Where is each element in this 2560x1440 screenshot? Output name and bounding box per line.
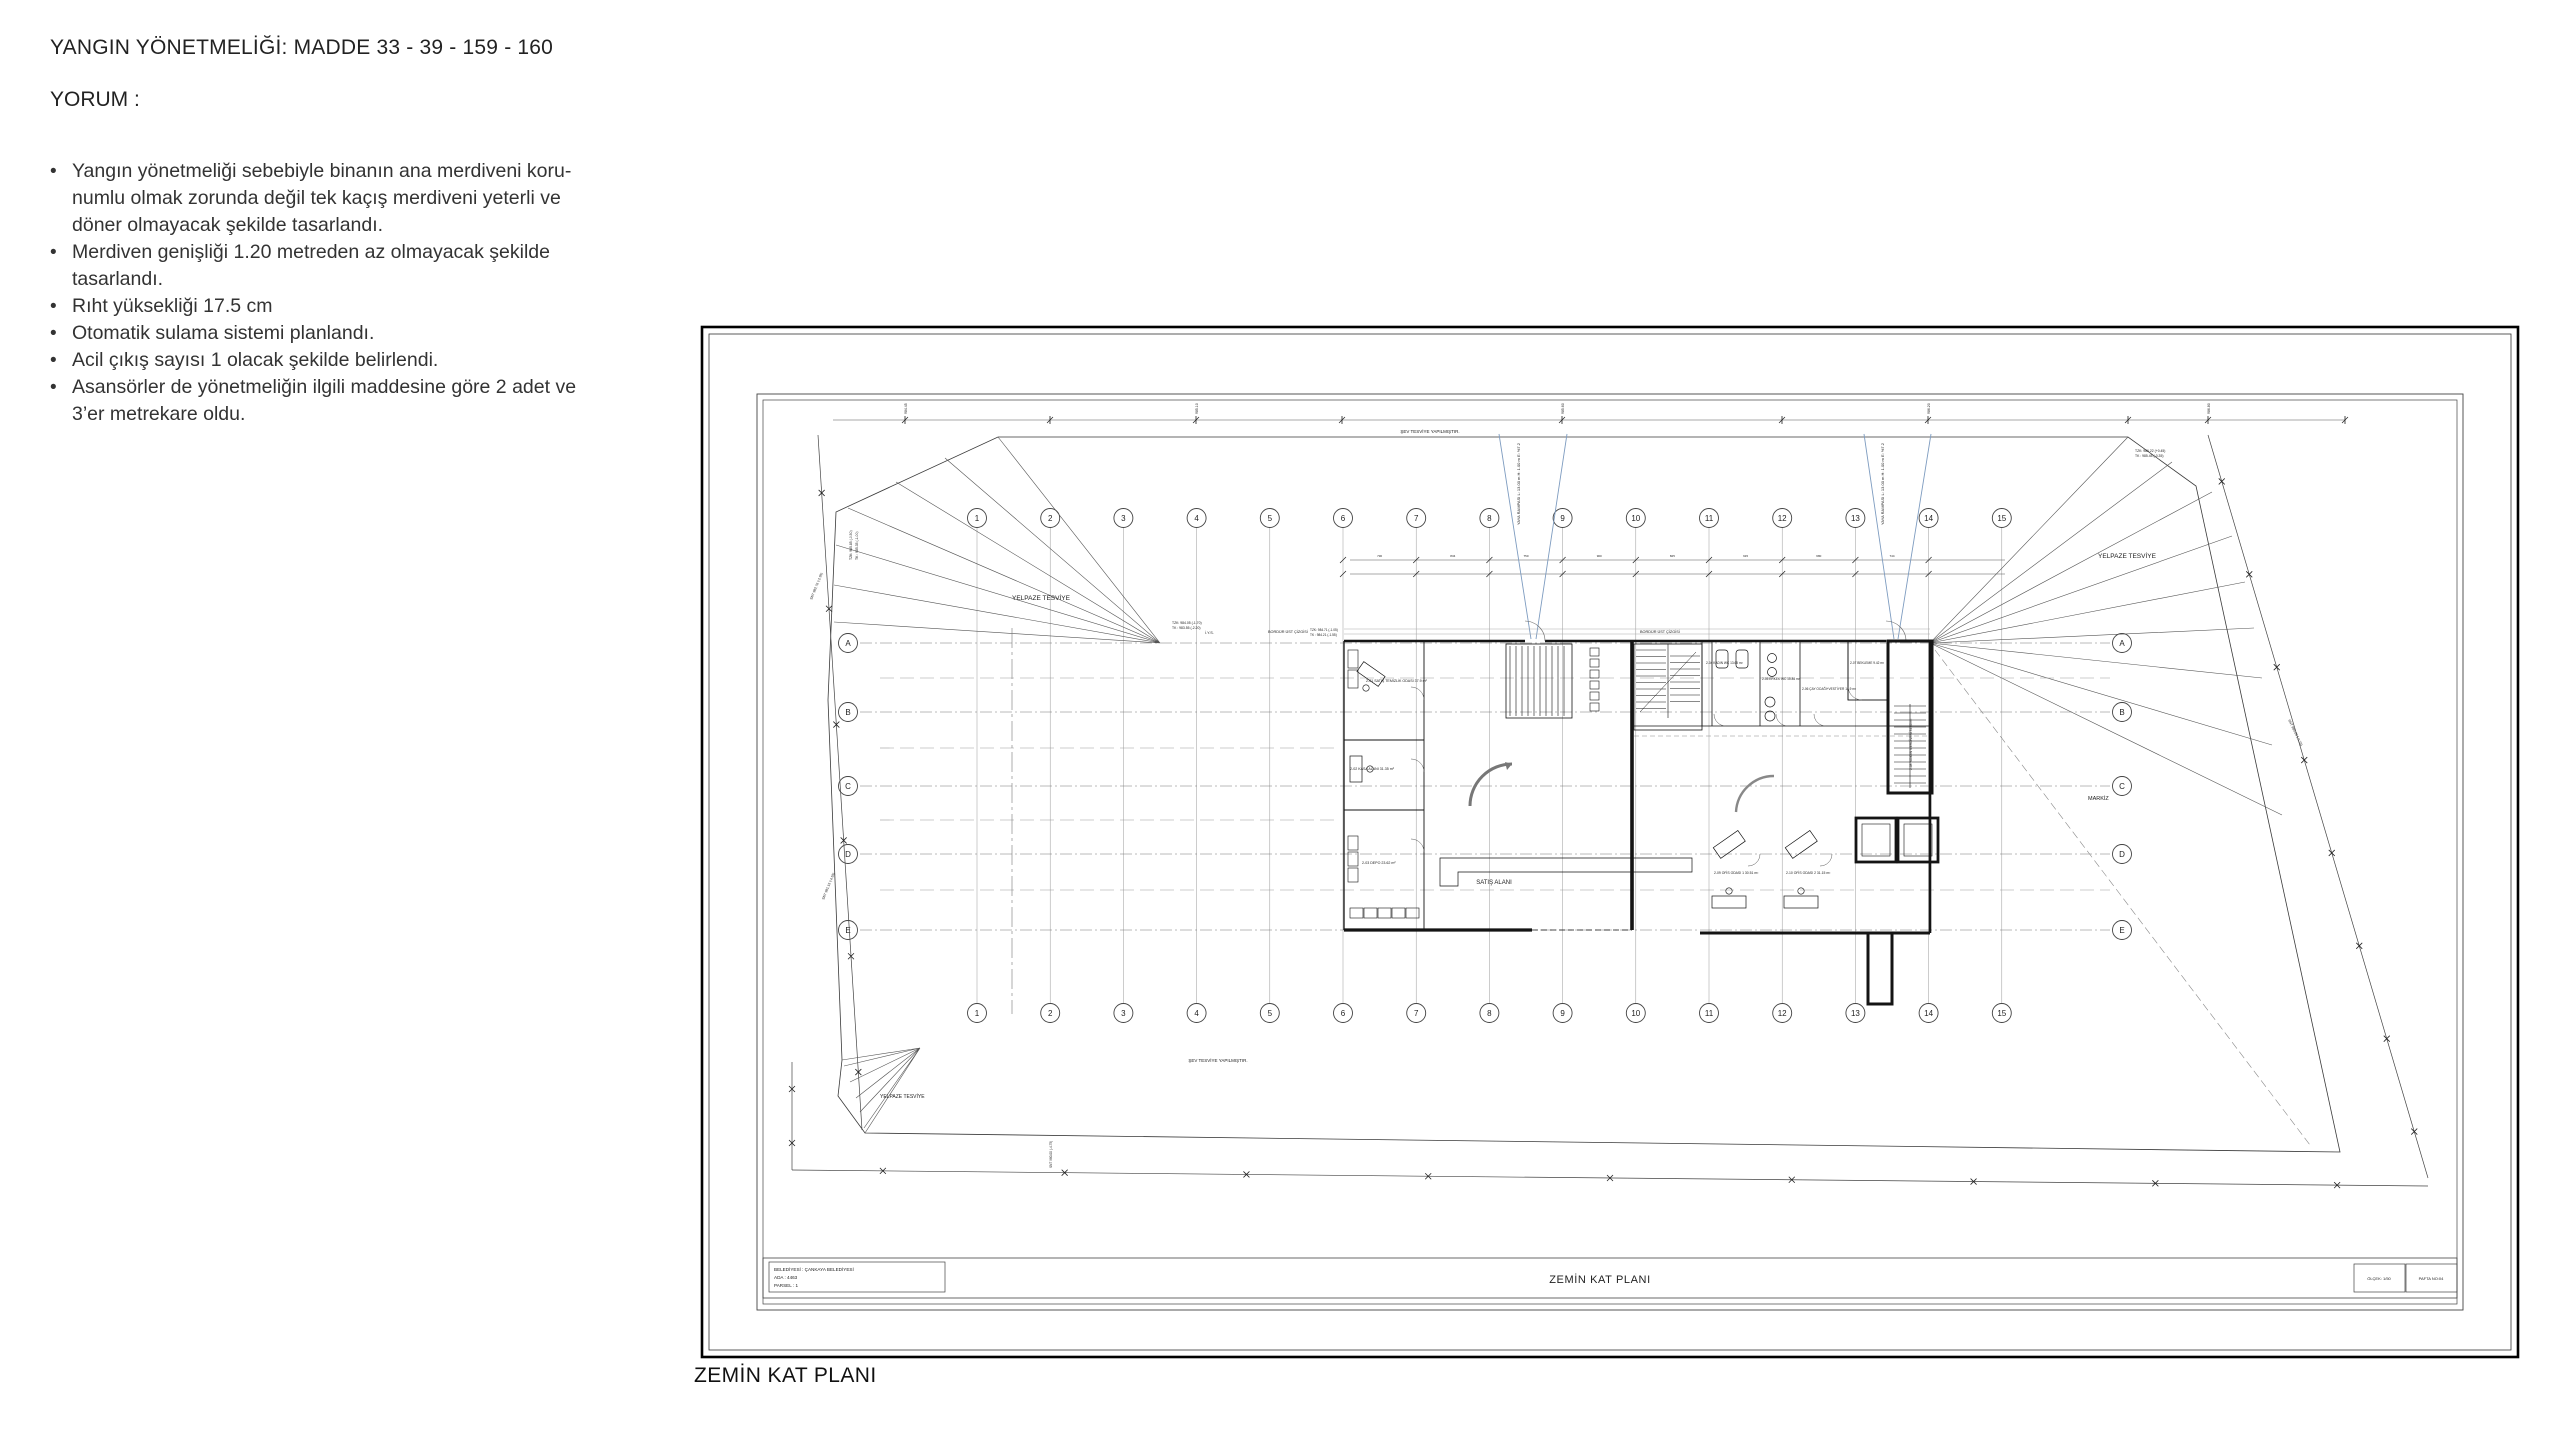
grid-row-bubble: C: [2119, 782, 2125, 791]
grid-row-bubble: E: [2119, 926, 2124, 935]
bullet-marker: •: [50, 320, 72, 347]
fire-regulation-notes: YANGIN YÖNETMELİĞİ: MADDE 33 - 39 - 159 …: [50, 36, 710, 428]
chair-symbol-1: [1363, 685, 1369, 691]
survey-note: TZK: 986.22 (+0.45): [2135, 449, 2165, 453]
bullet-text: Asansörler de yönetmeliğin ilgili maddes…: [72, 374, 576, 428]
grid-column-bubble: 13: [1851, 514, 1860, 523]
bullet-item: • Yangın yönetmeliği sebebiyle binanın a…: [50, 158, 710, 239]
office-desk-1: [1712, 896, 1746, 908]
floor-plan-sheet: 1122334455667788991010111112121313141415…: [700, 325, 2522, 1361]
lower-step-wall: [1868, 933, 1892, 1004]
label-ramp-1: YAYA RAMPASI L: 13.00 m H: 1.00 m E: %7.…: [1516, 442, 1521, 525]
bullet-text: Yangın yönetmeliği sebebiyle binanın ana…: [72, 158, 571, 239]
fan-leveling: [834, 437, 2310, 1145]
survey-note: TZK: 985.85 (-0.50): [849, 530, 853, 560]
pedestrian-ramps: [1499, 434, 1931, 639]
bullet-item: • Acil çıkış sayısı 1 olacak şekilde bel…: [50, 347, 710, 374]
survey-note: SNT 981.15 (-4.55): [821, 872, 836, 900]
drawing-border-inner: [763, 400, 2457, 1304]
toilet-fixture-2: [1736, 650, 1748, 668]
titleblock-sheet-no: PAFTA NO:04: [2419, 1276, 2445, 1281]
page: YANGIN YÖNETMELİĞİ: MADDE 33 - 39 - 159 …: [0, 0, 2560, 1440]
titleblock-scale: ÖLÇEK: 1/50: [2367, 1276, 2391, 1281]
room-label: 2-10 OFİS ODASI 2 31.15 m²: [1786, 870, 1831, 875]
fixture-g1: [1765, 697, 1775, 707]
curb-band: [1344, 629, 1930, 634]
site-boundary-polygon: [828, 437, 2340, 1152]
room-label: 2-09 OFİS ODASI 1 30.51 m²: [1714, 870, 1759, 875]
room-label: 2-08 YANGIN MERDİVENİ 34.80 m²: [1908, 719, 1913, 770]
dimension-label: 825: [1670, 554, 1675, 558]
elevation-tick-label: 984.45: [904, 403, 908, 414]
dimension-label: 900: [1597, 554, 1602, 558]
ramp-door-arcs: [1525, 621, 1906, 641]
grid-row-bubble: D: [845, 850, 851, 859]
label-bordur-1: BORDÜR ÜST ÇİZGİSİ: [1268, 629, 1308, 634]
dimension-label: 750: [1523, 554, 1528, 558]
grid-column-bubble: 1: [975, 514, 980, 523]
grid-column-bubble: 15: [1997, 514, 2006, 523]
label-ramp-2: YAYA RAMPASI L: 13.00 m H: 1.00 m E: %7.…: [1880, 442, 1885, 525]
grid-column-bubble: 14: [1924, 1009, 1933, 1018]
room-label: 2-01 SATIŞ TEMİZLİK ODASI 37.9 m²: [1366, 678, 1428, 683]
survey-lines: [789, 435, 2428, 1188]
room-label: 2-04 KADIN WC 13.65 m²: [1706, 661, 1743, 665]
notes-title: YANGIN YÖNETMELİĞİ: MADDE 33 - 39 - 159 …: [50, 36, 710, 60]
grid-column-bubble: 2: [1048, 514, 1053, 523]
vestibule-room: [1848, 641, 1888, 700]
grid-column-bubble: 14: [1924, 514, 1933, 523]
grid-column-bubble: 11: [1705, 1009, 1714, 1018]
label-markiz: MARKİZ: [2088, 795, 2109, 802]
sink-fixture-2: [1768, 668, 1777, 677]
survey-note: TK : 983.55 (-2.20): [1172, 626, 1200, 630]
survey-note: TZK: 984.71 (-1.05): [1310, 628, 1338, 632]
cabinet-1: [1348, 650, 1358, 668]
bullet-text: Otomatik sulama sistemi planlandı.: [72, 320, 374, 347]
bullet-item: • Otomatik sulama sistemi planlandı.: [50, 320, 710, 347]
bullet-marker: •: [50, 374, 72, 401]
grid-column-bubble: 6: [1341, 514, 1346, 523]
dimension-label: 730: [1377, 554, 1382, 558]
grid-row-bubble: A: [2119, 639, 2125, 648]
dimension-label: 834: [1450, 554, 1455, 558]
title-block: BELEDİYESİ : ÇANKAYA BELEDİYESİ ADA : 44…: [763, 1258, 2457, 1298]
grid-column-bubble: 4: [1194, 1009, 1199, 1018]
survey-note: SNT 980.00 (-4.75): [1049, 1141, 1053, 1168]
bullet-marker: •: [50, 239, 72, 266]
titleblock-line2: ADA : 4463: [774, 1275, 798, 1280]
bullet-item: • Rıht yüksekliği 17.5 cm: [50, 293, 710, 320]
survey-note: TZK: 984.05 (-1.70): [1172, 621, 1202, 625]
bullet-item: • Asansörler de yönetmeliğin ilgili madd…: [50, 374, 710, 428]
elevation-tick-label: 985.10: [1195, 403, 1199, 414]
site-boundary: [828, 437, 2340, 1152]
notes-bullet-list: • Yangın yönetmeliği sebebiyle binanın a…: [50, 158, 710, 428]
grid-column-bubble: 9: [1560, 514, 1565, 523]
label-iys: İ.Y.S.: [1205, 630, 1214, 635]
label-sev-top: ŞEV TESVİYE YAPILMIŞTIR.: [1400, 428, 1459, 434]
grid-column-bubble: 7: [1414, 514, 1419, 523]
grid-row-bubble: C: [845, 782, 851, 791]
office-door-arcs: [1748, 854, 1832, 866]
sheet-outer-frame-inner-line: [709, 334, 2511, 1350]
fan-bottom-left-rays: [842, 1048, 920, 1133]
grid-column-bubble: 11: [1705, 514, 1714, 523]
ramp-2-lines: [1864, 434, 1931, 639]
drive-arrow-2: [1736, 776, 1774, 812]
right-open-area-divider: [1935, 650, 2310, 1145]
depo-shelves: [1348, 836, 1419, 918]
grid-column-bubble: 1: [975, 1009, 980, 1018]
titleblock-line3: PARSEL : 1: [774, 1283, 798, 1288]
ramp-1-lines: [1499, 434, 1567, 639]
grid-row-bubble: B: [845, 708, 850, 717]
titleblock-drawing-title: ZEMİN KAT PLANI: [1549, 1273, 1651, 1286]
grid-column-bubble: 2: [1048, 1009, 1053, 1018]
office-chair-1: [1726, 888, 1732, 894]
grid-column-bubble: 6: [1341, 1009, 1346, 1018]
survey-note: TK : 985.35 (-1.00): [855, 532, 859, 560]
bullet-marker: •: [50, 293, 72, 320]
bullet-marker: •: [50, 158, 72, 185]
drawing-caption: ZEMİN KAT PLANI: [694, 1364, 877, 1388]
sheet-outer-frame: [702, 327, 2518, 1357]
grid-column-bubble: 9: [1560, 1009, 1565, 1018]
entry-stair-risers: [1510, 646, 1564, 716]
label-sev-bottom: ŞEV TESVİYE YAPILMIŞTIR.: [1188, 1057, 1247, 1063]
label-satis-alani: SATIŞ ALANI: [1476, 880, 1512, 886]
bullet-text: Rıht yüksekliği 17.5 cm: [72, 293, 273, 320]
elevator-car-2: [1904, 824, 1932, 856]
titleblock-line1: BELEDİYESİ : ÇANKAYA BELEDİYESİ: [774, 1266, 854, 1272]
grid-column-bubble: 5: [1268, 514, 1273, 523]
grid-column-bubble: 10: [1631, 1009, 1640, 1018]
plan-labels: YELPAZE TESVİYE YELPAZE TESVİYE YELPAZE …: [809, 428, 2303, 1168]
grid-column-bubble: 3: [1121, 514, 1126, 523]
grid-column-bubble: 13: [1851, 1009, 1860, 1018]
grid-column-bubble: 5: [1268, 1009, 1273, 1018]
toilet-fixture-1: [1716, 650, 1728, 668]
room-label: 2-05 ERKEK WC 15.84 m²: [1762, 677, 1800, 681]
fan-top-left-rays: [834, 437, 1160, 643]
bullet-text: Merdiven genişliği 1.20 metreden az olma…: [72, 239, 550, 293]
grid-row-bubble: B: [2119, 708, 2124, 717]
grid-column-bubble: 8: [1487, 514, 1492, 523]
label-yelpaze-bottom-left: YELPAZE TESVİYE: [880, 1093, 925, 1100]
grid-column-bubble: 12: [1778, 1009, 1787, 1018]
grid-column-bubble: 8: [1487, 1009, 1492, 1018]
office-chair-2: [1798, 888, 1804, 894]
grid-column-bubble: 3: [1121, 1009, 1126, 1018]
elevation-tick-label: 986.80: [2207, 403, 2211, 414]
room-label: 2-02 KASA ALANI 31.35 m²: [1350, 767, 1395, 771]
shelving-column: [1590, 648, 1599, 711]
grid-row-bubble: D: [2119, 850, 2125, 859]
grid-row-bubble: A: [845, 639, 851, 648]
fan-right-rays: [1930, 437, 2282, 815]
drive-arrow-1: [1470, 764, 1512, 806]
bullet-item: • Merdiven genişliği 1.20 metreden az ol…: [50, 239, 710, 293]
elevator-car-1: [1862, 824, 1890, 856]
dimension-label: 744: [1889, 554, 1894, 558]
grid-column-bubble: 12: [1778, 514, 1787, 523]
notes-subtitle: YORUM :: [50, 88, 710, 112]
label-yelpaze-top-left: YELPAZE TESVİYE: [1012, 593, 1071, 602]
grid-column-bubble: 4: [1194, 514, 1199, 523]
grid-column-bubble: 15: [1997, 1009, 2006, 1018]
elevation-tick-label: 985.60: [1561, 403, 1565, 414]
wc-door-arcs: [1714, 714, 1826, 726]
drawing-border-outer: [757, 394, 2463, 1310]
office-desk-2: [1784, 896, 1818, 908]
bullet-text: Acil çıkış sayısı 1 olacak şekilde belir…: [72, 347, 438, 374]
fixture-g2: [1765, 711, 1775, 721]
survey-note: TK : 984.21 (-1.55): [1310, 633, 1337, 637]
label-yelpaze-right: YELPAZE TESVİYE: [2098, 551, 2157, 560]
structural-grid: 1122334455667788991010111112121313141415…: [839, 509, 2132, 1023]
left-room-partitions: [1344, 641, 1424, 930]
survey-note: SNT 982.76 (-2.95): [809, 572, 824, 600]
cabinet-2: [1348, 670, 1358, 688]
dimension-lines: 984.45985.10985.60986.20986.807308347509…: [833, 403, 2348, 577]
dimension-label: 915: [1743, 554, 1748, 558]
building: [1344, 621, 1938, 1004]
room-label: 2-03 DEPO 23.62 m²: [1362, 861, 1396, 865]
grid-column-bubble: 7: [1414, 1009, 1419, 1018]
survey-note: TK : 985.45 (-0.35): [2135, 454, 2163, 458]
sink-fixture-1: [1768, 654, 1777, 663]
room-label: 2-06 ÇAY OCAĞI+VESTİYER 14.9 m²: [1802, 686, 1856, 691]
elevation-tick-label: 986.20: [1927, 403, 1931, 414]
survey-note: SNT 985.05 (-0.75): [2287, 719, 2303, 747]
room-label: 2-07 BEKLEME 9.42 m²: [1850, 661, 1884, 665]
label-bordur-2: BORDÜR ÜST ÇİZGİSİ: [1640, 629, 1680, 634]
grid-column-bubble: 10: [1631, 514, 1640, 523]
dimension-label: 680: [1816, 554, 1821, 558]
bullet-marker: •: [50, 347, 72, 374]
